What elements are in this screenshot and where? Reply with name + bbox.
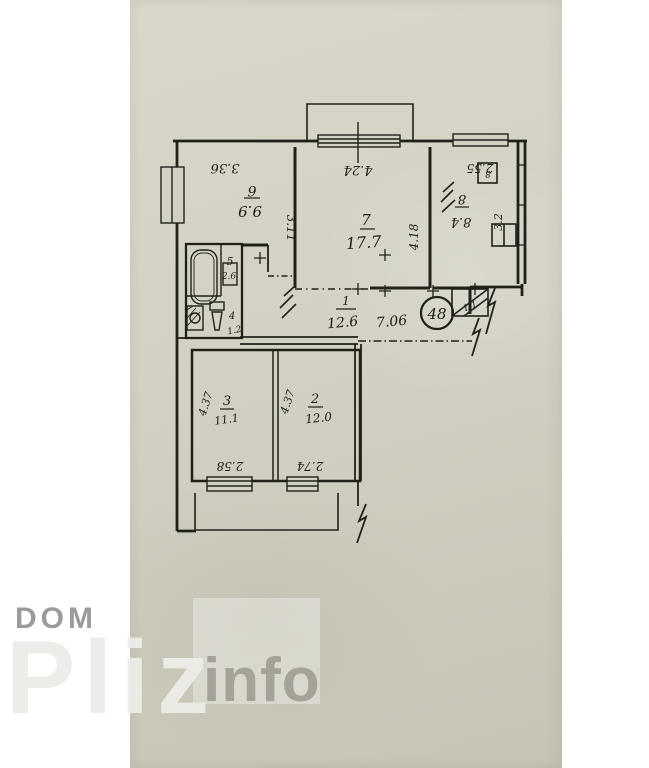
bathroom-block [186,244,242,338]
room-2-depth: 4.37 [277,388,297,416]
room-3-width: 2.58 [216,459,244,473]
room-6-area: 9.9 [238,202,262,220]
room-7-width: 4.24 [344,162,374,177]
room-3-labels: 3 11.1 4.37 2.58 [195,390,244,473]
room-8-number: 8 [458,191,466,206]
room-2-labels: 2 12.0 4.37 2.74 [277,388,333,473]
bath-number: 5 [227,255,234,268]
toilet-icon [212,312,222,330]
closet-area: 1.1 [462,300,479,314]
hall-labels: 1 12.6 7.06 [326,294,408,332]
room-7-depth: 4.18 [407,223,421,251]
room-2-area: 12.0 [305,410,333,427]
room-8-area: 8.4 [451,214,472,229]
room-8-depth: 3.2 [492,213,505,231]
kitchen-fixtures [452,163,516,316]
room-7-number: 7 [361,211,371,229]
page: { "watermark": { "dom": "DOM", "pliz": "… [0,0,649,768]
watermark-info: info [203,650,321,712]
watermark-dom: DOM [15,604,97,634]
room-3-number: 3 [223,394,231,409]
apartment-number: 48 [426,305,446,323]
room-7-labels: 4.24 7 17.7 4.18 [344,162,421,253]
room-6-labels: 3.36 6 9.9 3.11 [211,160,298,241]
hall-area: 12.6 [326,314,359,333]
windows [161,122,508,491]
bath-wc-labels: 5 2.6 4 1.2 [221,255,243,337]
room-8-labels: 2.55 8 8.4 3.2 8 1.1 [451,161,505,314]
balcony-bottom [195,493,338,530]
room-2-number: 2 [310,392,319,407]
vent-label: 8 [485,168,491,178]
room-6-depth: 3.11 [284,215,298,242]
hall-number: 1 [342,294,350,308]
apartment-badge: 48 [421,297,453,329]
room-3-area: 11.1 [213,411,239,427]
lower-rooms-divider [273,350,278,481]
room-6-width: 3.36 [211,160,240,175]
dimension-ticks [254,249,481,297]
room-2-width: 2.74 [297,459,325,473]
room-7-area: 17.7 [345,232,383,253]
bath-area: 2.6 [221,272,237,282]
wc-number: 4 [228,311,235,322]
watermark-pliz: Pliz [6,626,217,730]
hall-walls [178,245,361,506]
wc-area: 1.2 [227,325,243,338]
hall-width: 7.06 [375,313,408,332]
room-6-number: 6 [247,182,256,198]
